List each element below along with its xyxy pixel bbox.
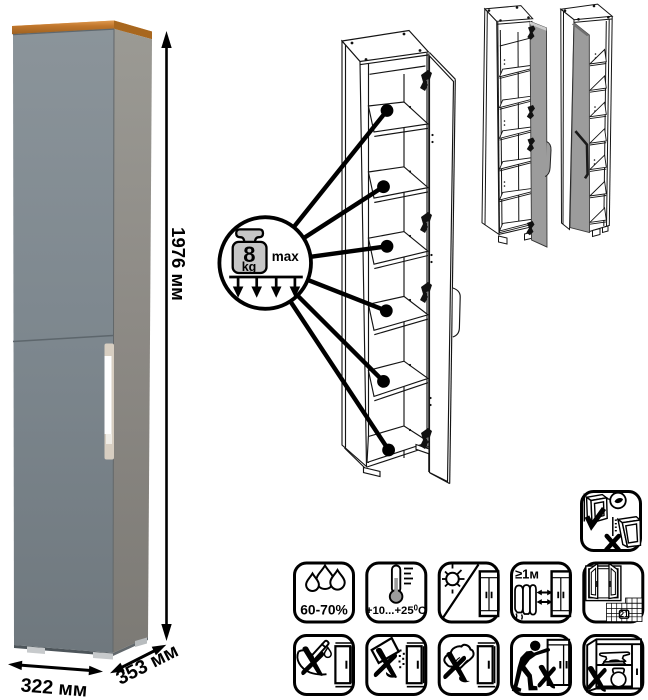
svg-text:60-70%: 60-70% [300, 603, 348, 618]
svg-text:max: max [272, 249, 300, 264]
svg-text:kg: kg [242, 260, 257, 274]
svg-text:322 мм: 322 мм [20, 674, 88, 700]
svg-text:1976 мм: 1976 мм [168, 227, 189, 301]
svg-text:21: 21 [620, 610, 629, 619]
svg-text:+10...+250C: +10...+250C [366, 603, 426, 617]
svg-text:≥1м: ≥1м [515, 567, 539, 582]
